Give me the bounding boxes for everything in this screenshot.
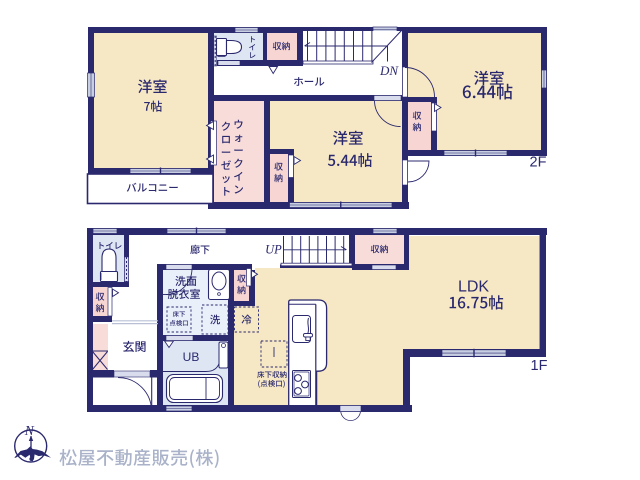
svg-text:N: N [24,423,35,438]
svg-text:UP: UP [265,243,282,257]
svg-text:UB: UB [183,350,200,364]
svg-text:DN: DN [379,63,399,78]
svg-text:1F: 1F [531,358,548,374]
svg-text:2F: 2F [530,155,547,171]
svg-text:LDK: LDK [458,278,489,295]
